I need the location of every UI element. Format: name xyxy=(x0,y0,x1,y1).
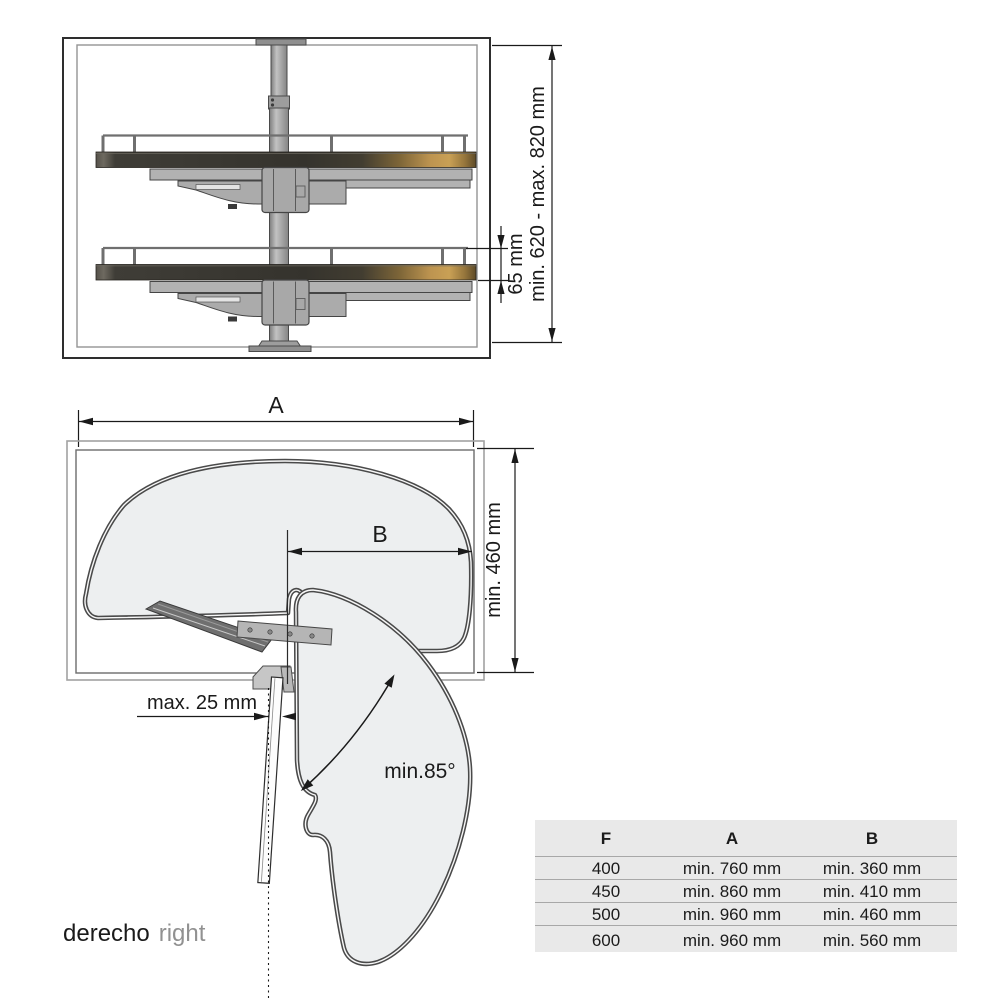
depth-dimension-b-label: B xyxy=(372,521,387,547)
orientation-label: derechoright xyxy=(63,920,206,947)
arrowhead-up xyxy=(497,281,504,295)
table-row: 400 min. 760 mm min. 360 mm xyxy=(535,857,957,880)
rail-height-dimension-label: 65 mm xyxy=(505,233,527,294)
stowed-kidney-shelf xyxy=(85,461,471,651)
arrowhead-left xyxy=(282,713,296,720)
bracket-screw xyxy=(288,632,292,636)
door-panel xyxy=(258,677,283,883)
front-elevation-view: 65 mm min. 620 - max. 820 mm xyxy=(63,38,562,358)
spec-header-a: A xyxy=(677,830,787,847)
cell-b: min. 360 mm xyxy=(787,860,957,877)
arrowhead-down xyxy=(497,235,504,249)
pole-base-plate xyxy=(249,346,311,352)
technical-drawing-page: 65 mm min. 620 - max. 820 mm A xyxy=(0,0,1000,1000)
arrowhead-down xyxy=(511,658,518,672)
cell-f: 600 xyxy=(535,932,677,949)
door-gap-dimension-label: max. 25 mm xyxy=(147,692,257,714)
cell-b: min. 410 mm xyxy=(787,883,957,900)
door-panel-face xyxy=(258,677,283,883)
cell-f: 500 xyxy=(535,906,677,923)
opening-angle-label: min.85° xyxy=(384,760,455,783)
stowed-shelf-outline xyxy=(85,461,471,651)
cabinet-height-dimension-label: min. 620 - max. 820 mm xyxy=(527,86,549,302)
width-dimension-a-label: A xyxy=(268,392,284,418)
arrowhead-down xyxy=(548,328,555,342)
arrowhead-right xyxy=(459,418,473,425)
arrowhead-up xyxy=(511,449,518,463)
cell-a: min. 760 mm xyxy=(677,860,787,877)
pole-screw xyxy=(271,103,274,106)
depth-dimension-460-label: min. 460 mm xyxy=(483,502,505,618)
cell-f: 400 xyxy=(535,860,677,877)
spec-header-b: B xyxy=(787,830,957,847)
pole-top-flange xyxy=(256,39,306,45)
orientation-secondary: right xyxy=(159,920,206,947)
cell-a: min. 860 mm xyxy=(677,883,787,900)
spec-table-header-row: F A B xyxy=(535,820,957,857)
bracket-screw xyxy=(248,628,252,632)
pole-upper-section xyxy=(271,45,287,101)
cell-b: min. 460 mm xyxy=(787,906,957,923)
cell-a: min. 960 mm xyxy=(677,932,787,949)
bracket-screw xyxy=(310,634,314,638)
cell-b: min. 560 mm xyxy=(787,932,957,949)
cell-a: min. 960 mm xyxy=(677,906,787,923)
table-row: 500 min. 960 mm min. 460 mm xyxy=(535,903,957,926)
table-row: 600 min. 960 mm min. 560 mm xyxy=(535,926,957,955)
dimension-spec-table: F A B 400 min. 760 mm min. 360 mm 450 mi… xyxy=(535,820,957,952)
pole-collar xyxy=(269,96,290,109)
spec-header-f: F xyxy=(535,830,677,847)
arrowhead-up xyxy=(548,47,555,61)
table-row: 450 min. 860 mm min. 410 mm xyxy=(535,880,957,903)
arrowhead-left xyxy=(79,418,93,425)
cell-f: 450 xyxy=(535,883,677,900)
bracket-screw xyxy=(268,630,272,634)
plan-view: A xyxy=(67,392,534,1000)
pole-screw xyxy=(271,98,274,101)
orientation-primary: derecho xyxy=(63,920,150,947)
